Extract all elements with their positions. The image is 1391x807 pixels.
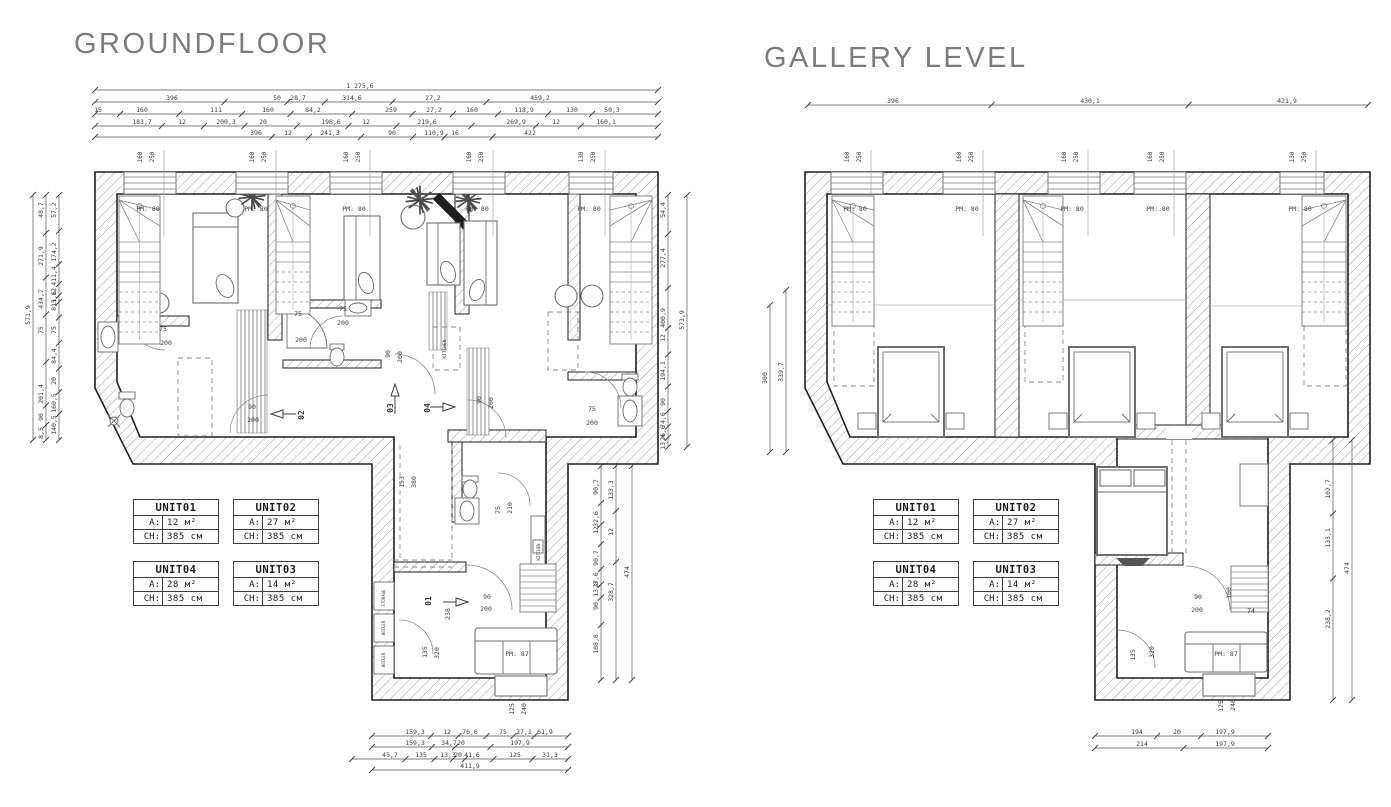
dim-label: 125 — [509, 751, 521, 759]
dim-label: 130 — [1289, 151, 1296, 162]
dim-label: 240 — [1229, 699, 1237, 711]
dim-label: 130 — [566, 106, 578, 114]
unit-area-value: 27 м² — [1003, 516, 1037, 529]
dim-label: 12 — [607, 528, 615, 536]
floorplan-page: GROUNDFLOOR GALLERY LEVEL — [0, 0, 1391, 807]
gallery-unit-table-unit03: UNIT03A:14 м²CH:385 см — [973, 561, 1059, 606]
dim-label: 194,1 — [659, 361, 667, 381]
unit-area-label: A: — [134, 578, 163, 591]
dim-label: 250 — [149, 151, 156, 162]
dim-label: 130 — [578, 151, 585, 162]
dim-label: 135 — [415, 751, 427, 759]
dim-label: 197,9 — [1215, 740, 1235, 748]
dim-label: 160 — [466, 151, 473, 162]
dim-label: 75 — [494, 506, 502, 514]
dim-label: 31,3 — [542, 751, 558, 759]
dim-label: 90 — [37, 413, 45, 421]
dim-label: 474 — [1343, 562, 1351, 574]
stair-icon — [520, 564, 556, 612]
unit-area-row: A:27 м² — [974, 516, 1058, 530]
stair-icon — [276, 196, 310, 314]
dim-label: 160 — [262, 106, 274, 114]
dim-label: 133,3 — [607, 480, 615, 500]
dim-label: PM: 80 — [1146, 205, 1170, 213]
dim-label: PM: 80 — [465, 205, 489, 213]
unit-area-label: A: — [974, 578, 1003, 591]
unit-area-label: A: — [974, 516, 1003, 529]
dim-label: 48,7 — [37, 202, 45, 218]
dim-label: 200,3 — [216, 118, 236, 126]
dim-label: 84,2 — [305, 106, 321, 114]
dim-label: 160 — [343, 151, 350, 162]
unit-ceiling-height-value: 385 см — [903, 592, 943, 605]
dim-label: 75 — [294, 310, 302, 318]
dim-label: 34,7 — [441, 739, 457, 747]
dim-label: 434,7 — [37, 289, 45, 309]
dim-label: 411,9 — [460, 762, 480, 770]
dim-label: PM: 80 — [342, 205, 366, 213]
dim-label: 75 — [37, 326, 45, 334]
dim-label: 200 — [337, 319, 349, 327]
unit-ceiling-height-value: 385 см — [263, 592, 303, 605]
dim-label: 133,1 — [1324, 528, 1332, 548]
unit-ceiling-height-row: CH:385 см — [974, 592, 1058, 605]
dim-label: 118,9 — [514, 106, 534, 114]
gl-beds — [858, 347, 1308, 437]
dim-label: 238,2 — [1324, 609, 1332, 629]
dim-label: 90 — [248, 403, 256, 411]
dim-label: 160,1 — [596, 118, 616, 126]
unit-name: UNIT02 — [234, 500, 318, 516]
dim-label: 210 — [506, 502, 514, 514]
dim-label: 15 — [94, 106, 102, 114]
dim-label: PM: 80 — [843, 205, 867, 213]
dim-label: 75 — [588, 405, 596, 413]
dim-label: 269,9 — [506, 118, 526, 126]
unit-name: UNIT04 — [134, 562, 218, 578]
dim-label: 571,9 — [24, 305, 32, 325]
dim-label: 160 — [137, 151, 144, 162]
dim-label: 571,9 — [678, 310, 686, 330]
dim-label: 159,3 — [405, 728, 425, 736]
dim-label: 27,1 — [516, 728, 532, 736]
unit-area-value: 14 м² — [1003, 578, 1037, 591]
dim-label: 160 — [844, 151, 851, 162]
unit-ceiling-height-row: CH:385 см — [874, 592, 958, 605]
dim-label: 12 — [552, 118, 560, 126]
dim-label: 198,6 — [321, 118, 341, 126]
unit-name: UNIT02 — [974, 500, 1058, 516]
dim-label: 380 — [410, 476, 418, 488]
dim-label: 197,9 — [1215, 728, 1235, 736]
unit-ceiling-height-row: CH:385 см — [134, 530, 218, 543]
dim-label: 20 — [454, 751, 462, 759]
unit-area-row: A:12 м² — [134, 516, 218, 530]
unit-ceiling-height-label: CH: — [134, 530, 163, 543]
dim-label: 160 — [466, 106, 478, 114]
dim-label: 03 — [386, 403, 395, 413]
unit-area-value: 14 м² — [263, 578, 297, 591]
unit-ceiling-height-value: 385 см — [903, 530, 943, 543]
unit-ceiling-height-label: CH: — [874, 530, 903, 543]
dim-label: 430,1 — [1080, 97, 1100, 105]
dim-label: 90 — [475, 396, 483, 404]
dim-label: 250 — [1301, 151, 1308, 162]
dim-label: 160 — [249, 151, 256, 162]
dim-label: PM: 80 — [1060, 205, 1084, 213]
unit-ceiling-height-row: CH:385 см — [874, 530, 958, 543]
gallery-plan — [805, 172, 1370, 700]
unit-name: UNIT04 — [874, 562, 958, 578]
dim-label: 160,5 — [50, 393, 58, 413]
dim-label: 12 — [443, 728, 451, 736]
unit-ceiling-height-value: 385 см — [263, 530, 303, 543]
unit-area-label: A: — [874, 516, 903, 529]
unit-area-value: 27 м² — [263, 516, 297, 529]
dim-label: 110,9 — [424, 129, 444, 137]
unit-area-label: A: — [874, 578, 903, 591]
dim-label: 200 — [480, 605, 492, 613]
unit-name: UNIT01 — [134, 500, 218, 516]
unit-ceiling-height-label: CH: — [974, 592, 1003, 605]
unit-ceiling-height-value: 385 см — [1003, 530, 1043, 543]
dim-label: BOILER — [381, 620, 386, 635]
dim-label: 02 — [297, 410, 306, 420]
groundfloor-unit-table-unit02: UNIT02A:27 м²CH:385 см — [233, 499, 319, 544]
dim-label: 200 — [487, 397, 495, 409]
dim-label: 90 — [388, 129, 396, 137]
dim-label: 13,8 — [592, 581, 600, 597]
dim-label: 50 — [273, 94, 281, 102]
gf-curtain — [237, 310, 267, 433]
dim-label: 90,7 — [592, 479, 600, 495]
unit-ceiling-height-row: CH:385 см — [974, 530, 1058, 543]
dim-label: 201,4 — [37, 384, 45, 404]
dim-label: 219,6 — [417, 118, 437, 126]
dim-label: 12 — [178, 118, 186, 126]
dim-label: 200 — [247, 416, 259, 424]
dim-label: 12 — [284, 129, 292, 137]
dim-label: 04 — [423, 403, 432, 413]
unit-ceiling-height-row: CH:385 см — [234, 530, 318, 543]
dim-label: 90 — [483, 593, 491, 601]
dim-label: 200 — [160, 339, 172, 347]
floorplan-canvas: 1 275,63965028,7314,627,2459,21516011116… — [0, 0, 1391, 807]
unit-area-row: A:27 м² — [234, 516, 318, 530]
groundfloor-unit-table-unit03: UNIT03A:14 м²CH:385 см — [233, 561, 319, 606]
dim-label: 396 — [887, 97, 899, 105]
dim-label: 75 — [339, 305, 347, 313]
dim-label: 90 — [1194, 593, 1202, 601]
dim-label: 241,3 — [320, 129, 340, 137]
groundfloor-unit-table-unit04: UNIT04A:28 м²CH:385 см — [133, 561, 219, 606]
unit-name: UNIT03 — [974, 562, 1058, 578]
unit-name: UNIT01 — [874, 500, 958, 516]
dim-label: KITCHEN — [536, 543, 541, 560]
unit-ceiling-height-row: CH:385 см — [234, 592, 318, 605]
dim-label: 111 — [210, 106, 222, 114]
gallery-unit-tables: UNIT01A:12 м²CH:385 смUNIT02A:27 м²CH:38… — [873, 499, 1059, 606]
dim-label: 160 — [136, 106, 148, 114]
dim-label: 277,4 — [659, 248, 667, 268]
unit-ceiling-height-value: 385 см — [163, 592, 203, 605]
gallery-unit-table-unit04: UNIT04A:28 м²CH:385 см — [873, 561, 959, 606]
dim-label: 100 — [1225, 587, 1233, 599]
gf-curtain — [467, 348, 489, 435]
dim-label: 8,5 — [50, 299, 58, 311]
dim-label: 76,6 — [462, 728, 478, 736]
dim-label: 50,3 — [604, 106, 620, 114]
dim-label: 01 — [424, 596, 433, 606]
dim-label: 194 — [1131, 728, 1143, 736]
dim-label: PM: 80 — [577, 205, 601, 213]
dim-label: 90 — [592, 602, 600, 610]
dim-label: 12 — [362, 118, 370, 126]
unit-area-row: A:14 м² — [974, 578, 1058, 592]
unit-area-label: A: — [134, 516, 163, 529]
dim-label: 396 — [250, 129, 262, 137]
dim-label: 183,7 — [132, 118, 152, 126]
dim-label: 125 — [1217, 700, 1225, 712]
dim-label: 27,2 — [425, 94, 441, 102]
dim-label: 250 — [590, 151, 597, 162]
unit-area-row: A:12 м² — [874, 516, 958, 530]
dim-label: 160 — [1061, 151, 1068, 162]
dim-label: 74 — [1247, 607, 1255, 615]
dim-label: 214 — [1136, 740, 1148, 748]
dim-label: 396 — [166, 94, 178, 102]
unit-ceiling-height-row: CH:385 см — [134, 592, 218, 605]
dim-label: 250 — [1159, 151, 1166, 162]
dim-label: 41,6 — [464, 751, 480, 759]
unit-area-row: A:28 м² — [874, 578, 958, 592]
unit-area-label: A: — [234, 516, 263, 529]
unit-ceiling-height-label: CH: — [874, 592, 903, 605]
dim-label: PM: 80 — [1288, 205, 1312, 213]
dim-label: 75 — [499, 728, 507, 736]
dim-label: 20 — [457, 739, 465, 747]
dim-label: PM: 80 — [955, 205, 979, 213]
stair-icon — [610, 196, 652, 344]
unit-area-value: 28 м² — [903, 578, 937, 591]
dim-label: 250 — [355, 151, 362, 162]
dim-label: 20 — [259, 118, 267, 126]
dim-label: 13,4 — [659, 434, 667, 450]
dim-label: 320 — [433, 647, 441, 659]
dim-label: 12 — [659, 334, 667, 342]
dim-label: 250 — [968, 151, 975, 162]
dim-label: PM: 87 — [505, 650, 529, 658]
dim-label: 300 — [761, 372, 769, 384]
dim-label: 153 — [398, 476, 406, 488]
dim-label: 90,7 — [592, 550, 600, 566]
dim-label: 75 — [50, 326, 58, 334]
dim-label: PM: 80 — [136, 205, 160, 213]
dim-label: 75 — [159, 325, 167, 333]
dim-label: 250 — [1073, 151, 1080, 162]
dim-label: 140,5 — [50, 415, 58, 435]
dim-label: 135 — [1129, 649, 1137, 661]
unit-area-value: 12 м² — [903, 516, 937, 529]
dim-label: 238 — [444, 608, 452, 620]
dim-label: KITCHEN — [442, 339, 448, 358]
groundfloor-plan — [95, 172, 658, 700]
dim-label: 200 — [1191, 606, 1203, 614]
dim-label: 259 — [385, 106, 397, 114]
dim-label: 61,9 — [537, 728, 553, 736]
dim-label: 32,6 — [592, 511, 600, 527]
dim-label: 459,2 — [530, 94, 550, 102]
dim-label: 200 — [586, 419, 598, 427]
dim-label: 339,7 — [777, 362, 785, 382]
dim-label: 1 275,6 — [346, 82, 373, 90]
stair-icon — [1023, 196, 1063, 326]
dim-label: 400,9 — [659, 308, 667, 328]
dim-label: 108,8 — [592, 634, 600, 654]
unit-ceiling-height-label: CH: — [234, 530, 263, 543]
dim-label: 422 — [524, 129, 536, 137]
dim-label: 159,3 — [405, 739, 425, 747]
dim-label: 20 — [1173, 728, 1181, 736]
dim-label: PM: 87 — [1214, 650, 1238, 658]
dim-label: 84,4 — [50, 348, 58, 364]
dim-label: 411,4 — [50, 266, 58, 286]
dim-label: 102,7 — [1324, 479, 1332, 499]
dim-label: 28,7 — [290, 94, 306, 102]
gallery-unit-table-unit01: UNIT01A:12 м²CH:385 см — [873, 499, 959, 544]
dim-label: 250 — [856, 151, 863, 162]
dim-label: 240 — [520, 703, 528, 715]
dim-label: 135 — [421, 646, 429, 658]
stair-icon — [832, 196, 874, 326]
unit-area-value: 28 м² — [163, 578, 197, 591]
dim-label: 160 — [1147, 151, 1154, 162]
dim-label: 12 — [592, 526, 600, 534]
dim-label: 174,2 — [50, 242, 58, 262]
dim-label: BOILER — [381, 652, 386, 667]
dim-label: 160 — [956, 151, 963, 162]
dim-label: 200 — [295, 336, 307, 344]
unit-area-row: A:14 м² — [234, 578, 318, 592]
dim-label: 125 — [508, 703, 516, 715]
stair-icon — [1302, 196, 1346, 326]
dim-label: 90 — [659, 398, 667, 406]
dim-label: 474 — [623, 566, 631, 578]
dim-label: 200 — [396, 351, 404, 363]
gallery-unit-table-unit02: UNIT02A:27 м²CH:385 см — [973, 499, 1059, 544]
stair-icon — [119, 196, 160, 344]
dim-label: 57,2 — [50, 202, 58, 218]
groundfloor-unit-tables: UNIT01A:12 м²CH:385 смUNIT02A:27 м²CH:38… — [133, 499, 319, 606]
dim-label: PM: 80 — [244, 205, 268, 213]
dim-label: 45,7 — [382, 751, 398, 759]
unit-name: UNIT03 — [234, 562, 318, 578]
dim-label: 27,2 — [426, 106, 442, 114]
dim-label: 197,9 — [510, 739, 530, 747]
unit-ceiling-height-label: CH: — [974, 530, 1003, 543]
unit-area-value: 12 м² — [163, 516, 197, 529]
unit-ceiling-height-label: CH: — [234, 592, 263, 605]
unit-area-row: A:28 м² — [134, 578, 218, 592]
dim-label: 320 — [1148, 646, 1156, 658]
dim-label: 90 — [384, 350, 392, 358]
dim-label: 271,9 — [37, 246, 45, 266]
dim-label: 314,6 — [342, 94, 362, 102]
dim-label: 20 — [50, 377, 58, 385]
dim-label: 250 — [478, 151, 485, 162]
dim-label: 250 — [261, 151, 268, 162]
dim-label: STORAGE — [381, 589, 386, 606]
unit-ceiling-height-value: 385 см — [163, 530, 203, 543]
dim-label: 8,5 — [37, 427, 45, 439]
unit-ceiling-height-value: 385 см — [1003, 592, 1043, 605]
dim-label: 328,7 — [607, 582, 615, 602]
unit-area-label: A: — [234, 578, 263, 591]
dim-label: 421,9 — [1277, 97, 1297, 105]
unit-ceiling-height-label: CH: — [134, 592, 163, 605]
stair-icon — [1231, 566, 1268, 612]
dim-label: 16 — [451, 129, 459, 137]
dim-label: 54,4 — [659, 202, 667, 218]
groundfloor-unit-table-unit01: UNIT01A:12 м²CH:385 см — [133, 499, 219, 544]
